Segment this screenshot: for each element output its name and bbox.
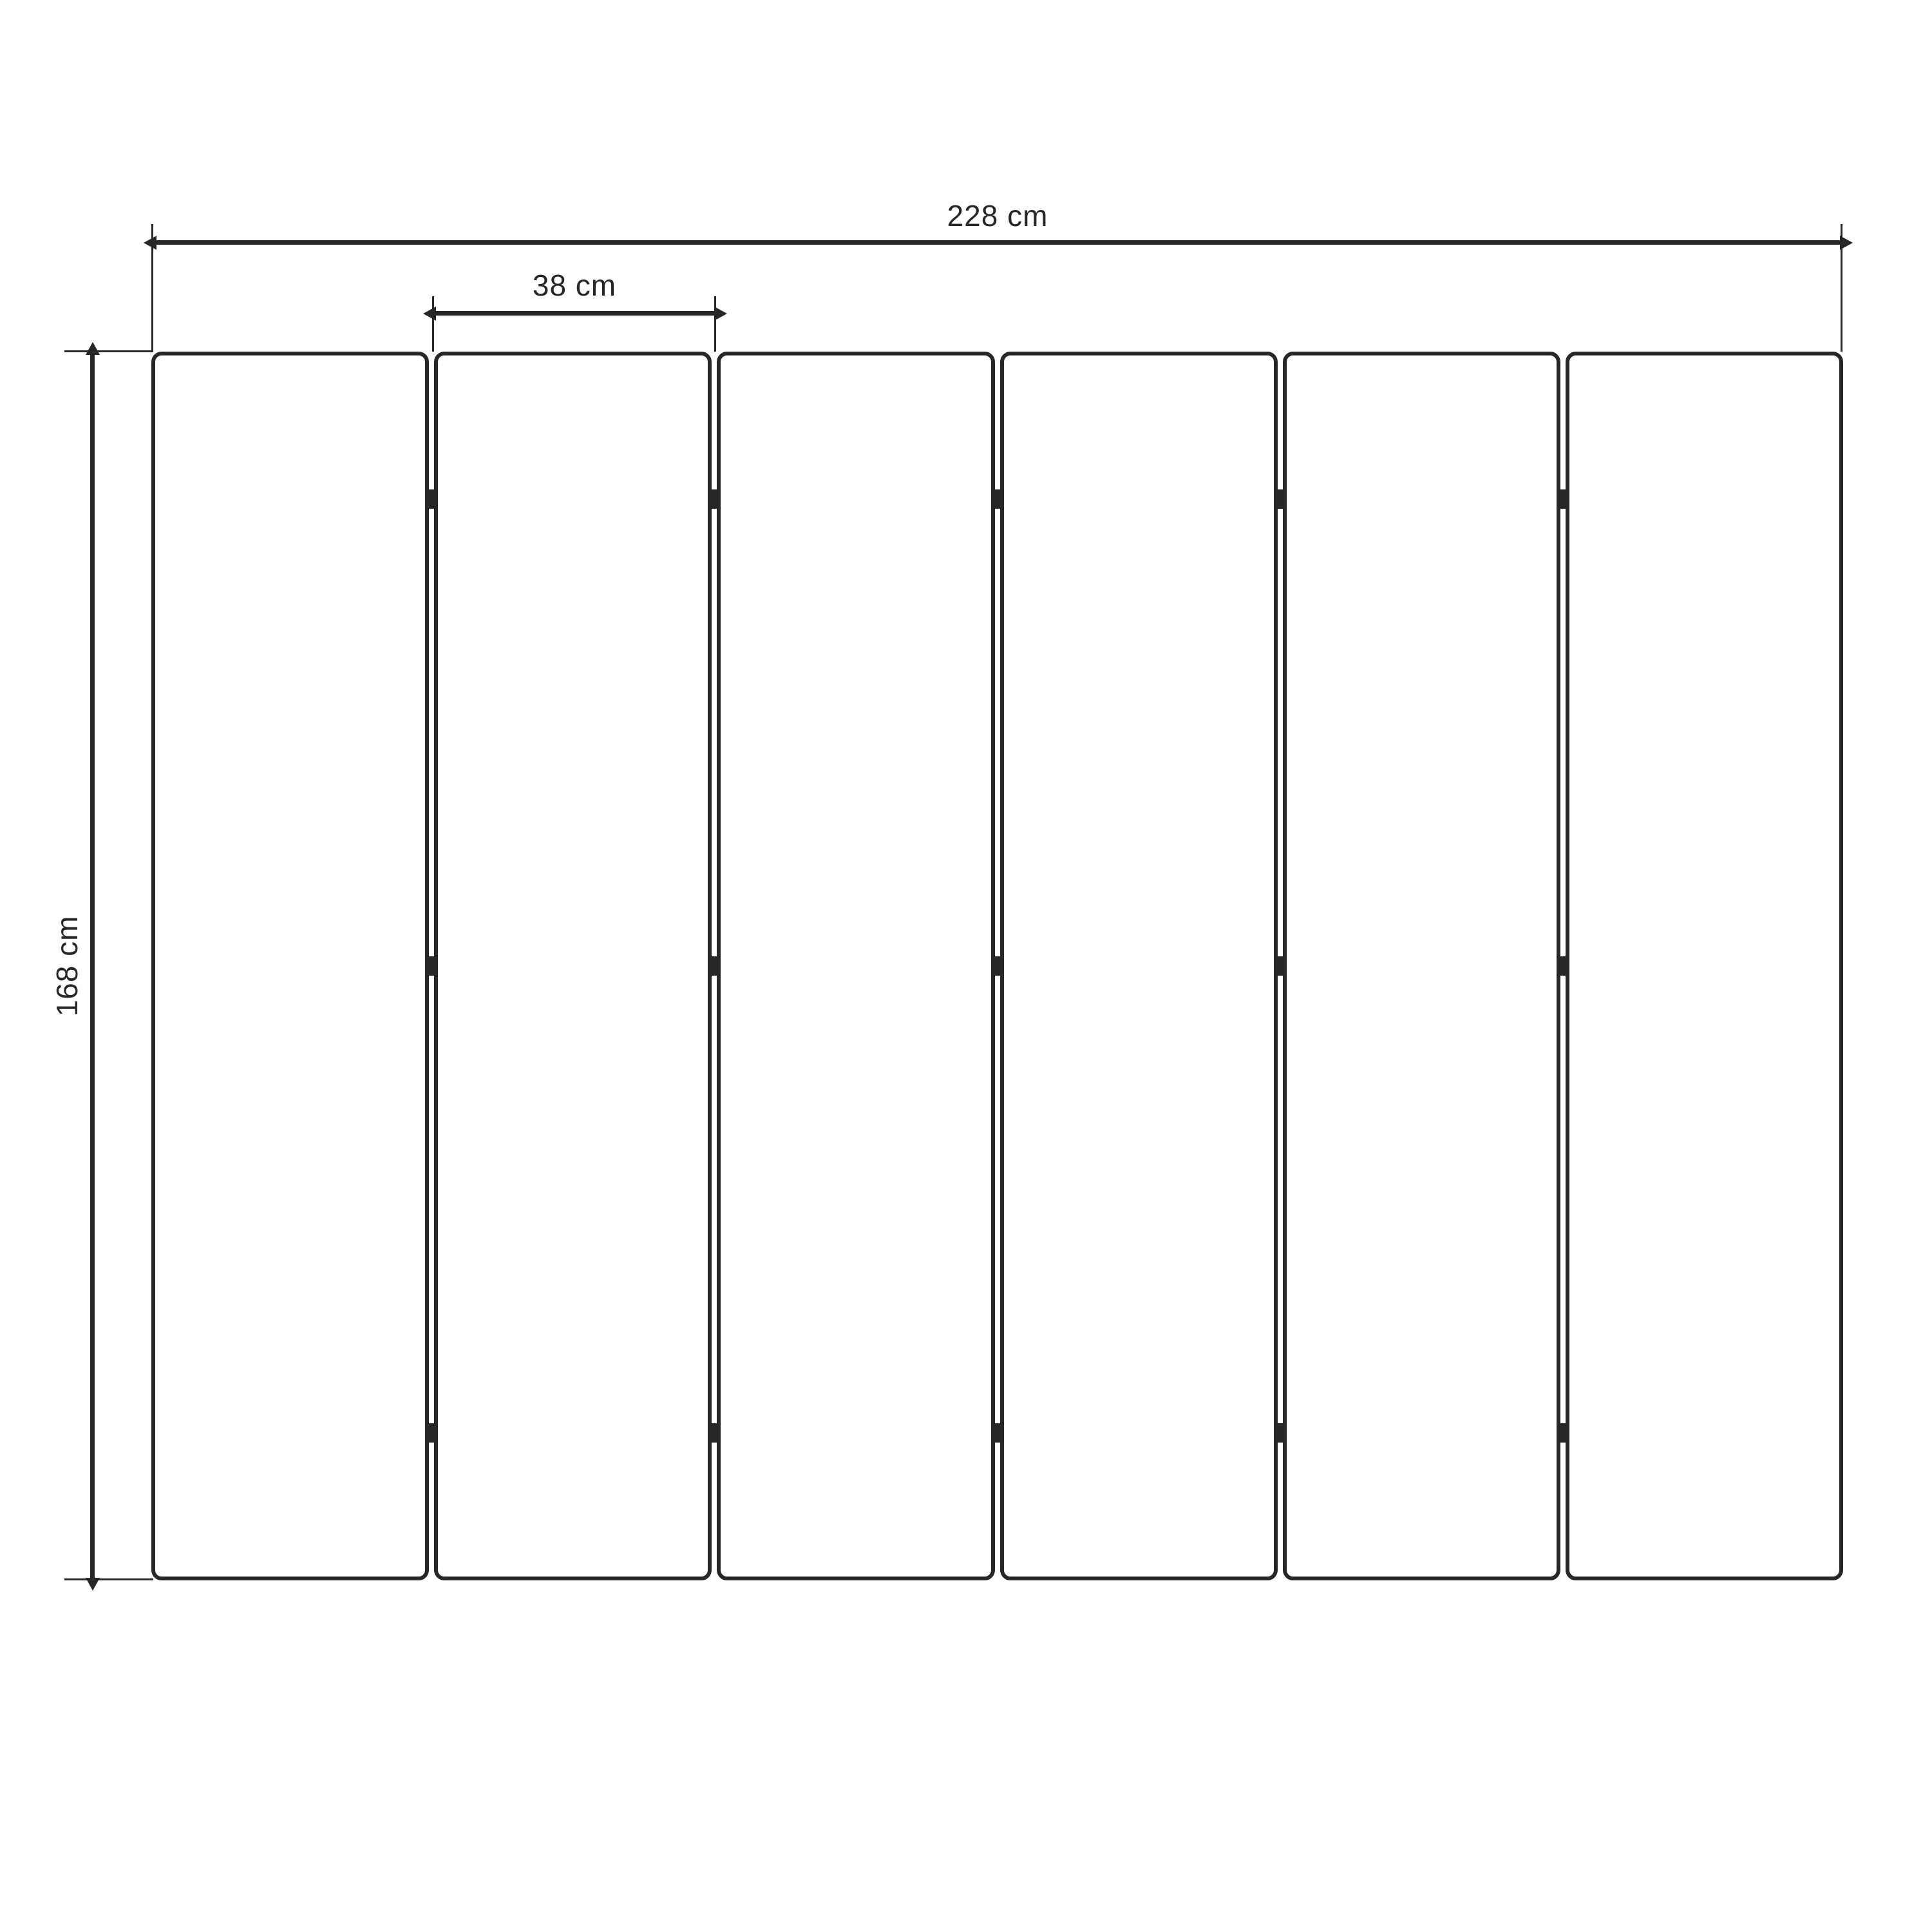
hinge-mark — [428, 489, 435, 509]
hinge-mark — [1559, 956, 1567, 976]
hinge-mark — [1276, 1423, 1284, 1443]
arrowhead-up-icon — [86, 342, 100, 355]
hinge-mark — [710, 1423, 718, 1443]
extension-line-height-top — [64, 350, 153, 352]
panel-width-dimension-arrow — [435, 311, 715, 316]
arrowhead-left-icon — [144, 236, 156, 250]
height-label: 168 cm — [52, 916, 82, 1017]
extension-line-panel-right — [714, 296, 716, 352]
hinge-mark — [428, 956, 435, 976]
panel — [434, 352, 712, 1580]
hinge-mark — [1276, 956, 1284, 976]
panel — [717, 352, 994, 1580]
arrowhead-left-icon — [423, 307, 436, 321]
hinge-mark — [1559, 1423, 1567, 1443]
hinge-mark — [994, 489, 1001, 509]
panel — [151, 352, 429, 1580]
extension-line-panel-left — [432, 296, 434, 352]
hinge-mark — [428, 1423, 435, 1443]
panel — [1566, 352, 1843, 1580]
hinge-mark — [1276, 489, 1284, 509]
hinge-mark — [710, 489, 718, 509]
panel — [1000, 352, 1278, 1580]
arrowhead-right-icon — [714, 307, 727, 321]
extension-line-height-bottom — [64, 1578, 153, 1580]
extension-line-total-right — [1841, 224, 1842, 352]
hinge-mark — [1559, 489, 1567, 509]
panel-width-label: 38 cm — [434, 270, 715, 300]
height-dimension-arrow — [90, 354, 95, 1578]
hinge-mark — [710, 956, 718, 976]
hinge-mark — [994, 956, 1001, 976]
diagram-canvas: 228 cm 38 cm 168 cm — [0, 0, 1932, 1932]
panel — [1283, 352, 1560, 1580]
hinge-mark — [994, 1423, 1001, 1443]
total-width-label: 228 cm — [155, 201, 1841, 231]
extension-line-total-left — [151, 224, 153, 352]
total-width-dimension-arrow — [156, 240, 1841, 245]
